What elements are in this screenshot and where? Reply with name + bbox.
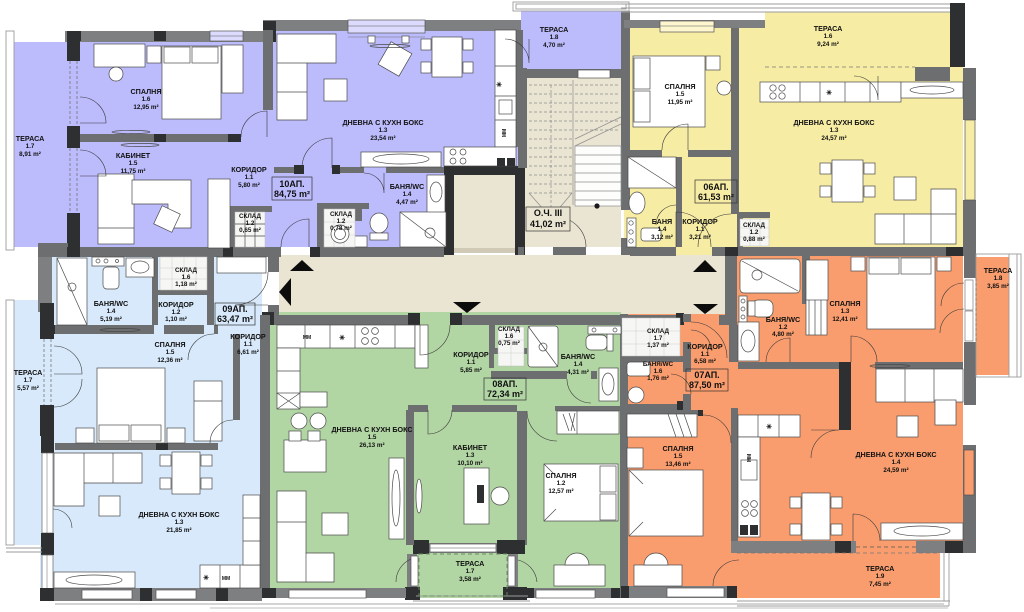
svg-text:1.1: 1.1 [245,174,254,181]
svg-text:КОРИДОР: КОРИДОР [158,300,194,309]
svg-text:1.4: 1.4 [892,459,901,466]
svg-text:1.1: 1.1 [244,341,253,348]
svg-text:MM: MM [502,129,508,137]
svg-text:КОРИДОР: КОРИДОР [682,217,718,226]
svg-text:6,58 m²: 6,58 m² [694,358,716,365]
svg-text:07АП.: 07АП. [694,370,719,380]
svg-text:ТЕРАСА: ТЕРАСА [14,368,43,377]
svg-text:4,31 m²: 4,31 m² [567,369,589,376]
svg-text:1.3: 1.3 [379,127,388,134]
svg-text:СКЛАД: СКЛАД [743,222,766,229]
svg-text:1.5: 1.5 [166,349,175,356]
svg-text:✳: ✳ [826,89,832,97]
svg-text:1.2: 1.2 [779,324,788,331]
svg-text:1,37 m²: 1,37 m² [647,342,669,349]
svg-text:1.6: 1.6 [654,368,663,375]
svg-text:1.7: 1.7 [466,568,475,575]
svg-text:СКЛАД: СКЛАД [239,213,262,220]
svg-text:3,21 m²: 3,21 m² [689,234,711,241]
svg-text:23,54 m²: 23,54 m² [370,135,395,142]
svg-text:1.5: 1.5 [368,434,377,441]
svg-text:84,75 m²: 84,75 m² [274,189,310,199]
svg-text:1.6: 1.6 [505,333,514,340]
svg-text:12,57 m²: 12,57 m² [548,488,573,495]
svg-text:0,65 m²: 0,65 m² [239,227,261,234]
svg-text:0,78 m²: 0,78 m² [330,225,352,232]
svg-text:ТЕРАСА: ТЕРАСА [814,24,843,33]
svg-text:12,36 m²: 12,36 m² [157,357,182,364]
svg-text:1.4: 1.4 [403,191,412,198]
svg-text:1.8: 1.8 [994,275,1003,282]
svg-text:КОРИДОР: КОРИДОР [453,350,489,359]
svg-text:MM: MM [222,576,230,582]
svg-text:3,12 m²: 3,12 m² [651,234,673,241]
svg-text:БАНЯ/WC: БАНЯ/WC [561,352,595,361]
svg-text:БАНЯ/WC: БАНЯ/WC [766,315,800,324]
svg-text:3,58 m²: 3,58 m² [459,576,481,583]
svg-text:БАНЯ/WC: БАНЯ/WC [643,361,674,368]
svg-text:08АП.: 08АП. [492,379,517,389]
svg-text:12,41 m²: 12,41 m² [832,316,857,323]
svg-text:11,75 m²: 11,75 m² [121,168,146,175]
svg-text:ТЕРАСА: ТЕРАСА [16,134,45,143]
svg-text:1.3: 1.3 [175,519,184,526]
svg-text:12,95 m²: 12,95 m² [133,104,158,111]
svg-text:4,47 m²: 4,47 m² [396,199,418,206]
svg-text:1,76 m²: 1,76 m² [647,375,669,382]
svg-text:4,80 m²: 4,80 m² [772,331,794,338]
svg-text:24,57 m²: 24,57 m² [821,135,846,142]
svg-text:ТЕРАСА: ТЕРАСА [984,266,1013,275]
svg-text:БАНЯ/WC: БАНЯ/WC [94,299,128,308]
svg-text:7,45 m²: 7,45 m² [869,581,891,588]
svg-text:5,80 m²: 5,80 m² [238,182,260,189]
svg-text:СПАЛНЯ: СПАЛНЯ [545,471,576,480]
svg-text:1.4: 1.4 [658,226,667,233]
svg-text:СПАЛНЯ: СПАЛНЯ [662,444,693,453]
svg-text:1.6: 1.6 [182,274,191,281]
svg-text:1.4: 1.4 [574,361,583,368]
svg-text:87,50 m²: 87,50 m² [689,380,725,390]
svg-text:БАНЯ/WC: БАНЯ/WC [390,182,424,191]
svg-text:5,19 m²: 5,19 m² [100,316,122,323]
svg-text:13,46 m²: 13,46 m² [665,461,690,468]
svg-text:1.1: 1.1 [701,351,710,358]
svg-text:1.6: 1.6 [142,96,151,103]
svg-text:ТЕРАСА: ТЕРАСА [866,564,895,573]
svg-text:СКЛАД: СКЛАД [330,211,353,218]
svg-text:ДНЕВНА С КУХН БОКС: ДНЕВНА С КУХН БОКС [855,450,936,459]
svg-text:О.Ч. III: О.Ч. III [534,208,562,218]
svg-text:1.2: 1.2 [750,229,759,236]
svg-text:✳: ✳ [496,81,502,89]
svg-text:СКЛАД: СКЛАД [647,328,670,335]
svg-text:КОРИДОР: КОРИДОР [230,332,266,341]
svg-text:8,91 m²: 8,91 m² [19,151,41,158]
svg-text:1.2: 1.2 [172,309,181,316]
svg-text:61,53 m²: 61,53 m² [698,192,734,202]
svg-text:СПАЛНЯ: СПАЛНЯ [829,299,860,308]
svg-text:1.1: 1.1 [696,226,705,233]
svg-text:1.9: 1.9 [876,573,885,580]
svg-text:ДНЕВНА С КУХН БОКС: ДНЕВНА С КУХН БОКС [342,118,423,127]
svg-text:СКЛАД: СКЛАД [498,326,521,333]
svg-text:0,75 m²: 0,75 m² [498,340,520,347]
svg-text:72,34 m²: 72,34 m² [487,389,523,399]
svg-text:СПАЛНЯ: СПАЛНЯ [664,82,695,91]
svg-text:БАНЯ: БАНЯ [652,217,672,226]
svg-text:ТЕРАСА: ТЕРАСА [456,559,485,568]
svg-text:11,95 m²: 11,95 m² [668,99,693,106]
svg-text:1.7: 1.7 [24,377,33,384]
svg-text:3,85 m²: 3,85 m² [987,283,1009,290]
svg-text:5,85 m²: 5,85 m² [460,367,482,374]
svg-text:MM: MM [747,454,753,462]
svg-text:СКЛАД: СКЛАД [175,267,198,274]
svg-text:6,61 m²: 6,61 m² [237,349,259,356]
svg-text:1,10 m²: 1,10 m² [165,316,187,323]
svg-text:1.5: 1.5 [129,160,138,167]
svg-text:1.7: 1.7 [26,143,35,150]
svg-text:1.1: 1.1 [467,359,476,366]
svg-text:1.3: 1.3 [466,452,475,459]
svg-text:MM: MM [303,335,311,341]
svg-text:1.5: 1.5 [674,453,683,460]
svg-text:10АП.: 10АП. [279,179,304,189]
svg-text:СПАЛНЯ: СПАЛНЯ [154,340,185,349]
svg-text:1.3: 1.3 [841,308,850,315]
svg-text:✳: ✳ [766,423,772,431]
svg-text:06АП.: 06АП. [703,182,728,192]
svg-text:1.5: 1.5 [676,91,685,98]
svg-text:09АП.: 09АП. [222,304,247,314]
svg-text:ДНЕВНА С КУХН БОКС: ДНЕВНА С КУХН БОКС [138,510,219,519]
svg-text:0,88 m²: 0,88 m² [743,236,765,243]
svg-text:ДНЕВНА С КУХН БОКС: ДНЕВНА С КУХН БОКС [331,425,412,434]
svg-text:ДНЕВНА С КУХН БОКС: ДНЕВНА С КУХН БОКС [793,118,874,127]
svg-text:КОРИДОР: КОРИДОР [687,342,723,351]
svg-text:26,13 m²: 26,13 m² [359,442,384,449]
svg-text:24,59 m²: 24,59 m² [883,467,908,474]
svg-text:ТЕРАСА: ТЕРАСА [540,25,569,34]
svg-text:63,47 m²: 63,47 m² [217,314,253,324]
svg-text:✳: ✳ [203,574,209,582]
svg-text:1.4: 1.4 [107,308,116,315]
svg-text:1.3: 1.3 [830,127,839,134]
svg-text:1.2: 1.2 [337,218,346,225]
svg-text:1.7: 1.7 [654,335,663,342]
svg-text:4,70 m²: 4,70 m² [543,42,565,49]
svg-text:1.2: 1.2 [246,220,255,227]
svg-text:5,57 m²: 5,57 m² [17,385,39,392]
svg-text:1.8: 1.8 [550,34,559,41]
svg-text:1.2: 1.2 [557,480,566,487]
svg-text:СПАЛНЯ: СПАЛНЯ [130,87,161,96]
svg-text:10,10 m²: 10,10 m² [457,460,482,467]
svg-text:41,02 m²: 41,02 m² [530,219,566,229]
svg-text:✳: ✳ [339,334,345,342]
svg-text:1,18 m²: 1,18 m² [175,281,197,288]
svg-text:9,24 m²: 9,24 m² [817,41,839,48]
svg-text:КАБИНЕТ: КАБИНЕТ [453,443,488,452]
svg-text:КОРИДОР: КОРИДОР [231,165,267,174]
svg-text:КАБИНЕТ: КАБИНЕТ [116,151,151,160]
svg-text:21,85 m²: 21,85 m² [166,527,191,534]
svg-text:1.6: 1.6 [824,33,833,40]
